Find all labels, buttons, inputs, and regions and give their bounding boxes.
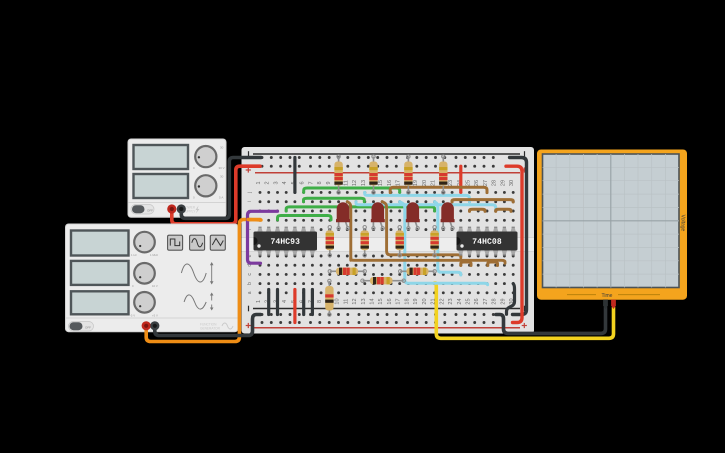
svg-text:GENERATOR: GENERATOR [200, 326, 221, 330]
svg-text:-5 V: -5 V [130, 314, 135, 318]
svg-text:29: 29 [500, 180, 506, 186]
svg-text:17: 17 [396, 298, 402, 304]
svg-text:8: 8 [317, 181, 323, 184]
svg-text:10: 10 [335, 298, 341, 304]
svg-text:13: 13 [361, 298, 367, 304]
svg-text:7: 7 [308, 181, 314, 184]
svg-text:12: 12 [352, 180, 358, 186]
svg-text:10 V: 10 V [152, 284, 158, 288]
svg-text:14: 14 [370, 298, 376, 304]
svg-text:1 Hz: 1 Hz [131, 253, 137, 257]
svg-text:27: 27 [483, 180, 489, 186]
svg-text:Voltage: Voltage [680, 215, 686, 232]
svg-text:28: 28 [492, 298, 498, 304]
svg-text:29: 29 [500, 298, 506, 304]
svg-text:30 V: 30 V [219, 166, 225, 170]
svg-text:23: 23 [448, 180, 454, 186]
svg-text:23: 23 [448, 298, 454, 304]
svg-text:16: 16 [387, 298, 393, 304]
svg-text:30: 30 [220, 175, 224, 179]
svg-text:11: 11 [343, 180, 349, 186]
svg-text:15: 15 [378, 298, 384, 304]
svg-text:i: i [247, 201, 253, 202]
svg-text:21: 21 [431, 180, 437, 186]
svg-text:26: 26 [474, 298, 480, 304]
svg-text:8: 8 [317, 300, 323, 303]
svg-text:22: 22 [439, 298, 445, 304]
svg-text:9: 9 [326, 181, 332, 184]
svg-text:19: 19 [413, 180, 419, 186]
svg-text:4: 4 [282, 181, 288, 184]
svg-text:30: 30 [220, 146, 224, 150]
svg-text:26: 26 [474, 180, 480, 186]
svg-text:Time: Time [602, 293, 613, 299]
svg-text:15: 15 [378, 180, 384, 186]
svg-text:27: 27 [483, 298, 489, 304]
svg-text:24: 24 [457, 298, 463, 304]
svg-text:30: 30 [509, 180, 515, 186]
svg-text:4: 4 [282, 300, 288, 303]
svg-text:12: 12 [352, 298, 358, 304]
svg-text:20: 20 [422, 180, 428, 186]
svg-text:28: 28 [492, 180, 498, 186]
svg-text:j: j [247, 192, 253, 194]
svg-text:17: 17 [396, 180, 402, 186]
svg-text:3: 3 [274, 181, 280, 184]
svg-text:1: 1 [256, 181, 262, 184]
svg-text:13: 13 [361, 180, 367, 186]
svg-text:25: 25 [466, 180, 472, 186]
svg-text:25: 25 [466, 298, 472, 304]
svg-text:16: 16 [387, 180, 393, 186]
svg-text:b: b [247, 282, 253, 285]
svg-text:6: 6 [300, 181, 306, 184]
svg-text:20: 20 [422, 298, 428, 304]
svg-text:+5 V: +5 V [152, 314, 158, 318]
svg-text:1: 1 [256, 300, 262, 303]
svg-text:19: 19 [413, 298, 419, 304]
svg-text:5 A: 5 A [219, 195, 223, 199]
svg-text:OFF: OFF [85, 325, 91, 329]
svg-text:a: a [247, 291, 253, 294]
svg-text:11: 11 [343, 299, 349, 305]
svg-text:18: 18 [404, 298, 410, 304]
svg-text:1 MHz: 1 MHz [150, 253, 159, 257]
svg-text:OFF: OFF [147, 208, 153, 212]
svg-text:2: 2 [265, 181, 271, 184]
